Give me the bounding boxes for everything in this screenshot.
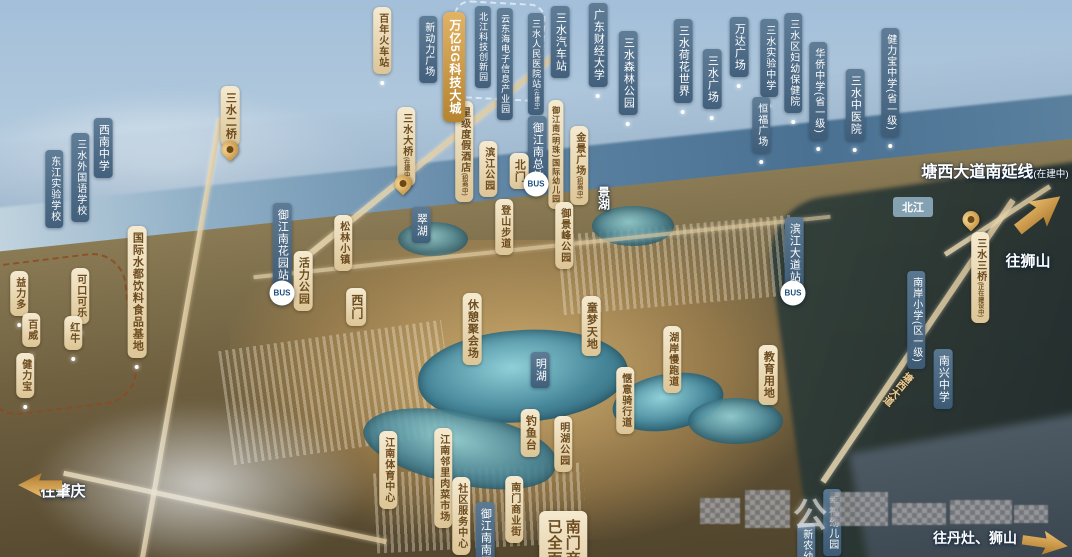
poi-label: 东江实验学校	[45, 150, 63, 228]
poi-label: 松林小镇	[334, 215, 352, 271]
direction-text-label: 景湖	[597, 186, 611, 210]
poi-label: 三水森林公园	[619, 31, 638, 115]
poi-label: 健力宝中学(省一级)	[881, 28, 899, 137]
watermark-mosaic-block	[1014, 505, 1048, 523]
poi-label-text: 三水实验中学	[764, 25, 775, 91]
direction-text: 景湖	[596, 186, 613, 210]
poi-label: 金景广场(招商中)	[570, 126, 588, 205]
poi-label-text: 三水大桥	[401, 113, 412, 157]
watermark-mosaic-block	[745, 490, 790, 528]
poi-label: 登山步道	[495, 199, 513, 255]
poi-label: 御景峰公园	[555, 202, 573, 269]
poi-label-text: 童梦天地	[585, 302, 597, 350]
poi-label-text: 广东财经大学	[592, 9, 604, 81]
poi-label: 红牛	[64, 316, 82, 350]
poi-label-text: 可口可乐	[75, 274, 86, 318]
watermark-mosaic-block	[950, 500, 1012, 524]
poi-label: 滨江公园	[479, 141, 497, 197]
poi-label-text: 三水外国语学校	[75, 139, 86, 216]
poi-label: 童梦天地	[582, 296, 601, 356]
poi-label: 广东财经大学	[589, 3, 608, 87]
bus-station-icon: BUS	[524, 172, 549, 197]
poi-label-text: 三水汽车站	[554, 12, 566, 72]
poi-label-text: 江南体育中心	[383, 437, 394, 503]
poi-label: 南兴中学	[934, 349, 953, 409]
poi-label-text: 御景峰公园	[559, 208, 570, 263]
poi-label: 三水广场	[703, 49, 722, 109]
poi-label-text: 西南中学	[97, 124, 109, 172]
poi-label-text: 万达广场	[733, 23, 745, 71]
poi-label: 南门商业街已全面开放	[539, 511, 587, 557]
direction-text-label: 往狮山	[1005, 253, 1050, 270]
bus-station-icon: BUS	[270, 281, 295, 306]
poi-label: 云东海电子信息产业园	[497, 8, 513, 120]
poi-label: 三水二桥	[221, 86, 240, 146]
poi-label-text: 健力宝中学(省一级)	[885, 34, 896, 131]
poi-label-text: 钓鱼台	[524, 415, 536, 451]
watermark-mosaic-block	[700, 498, 740, 524]
poi-label: 钓鱼台	[521, 409, 540, 457]
bus-station-icon-text: BUS	[274, 289, 291, 298]
poi-label-text: 西门	[350, 294, 364, 320]
poi-label-text: 御江南花园站	[276, 209, 288, 281]
poi-label: 江南体育中心	[379, 431, 397, 509]
poi-label-text: 翠湖	[415, 213, 427, 237]
poi-label-text: 健力宝	[20, 359, 31, 392]
poi-label: 明湖	[531, 352, 550, 388]
poi-label-text: 万亿5G科技大城	[448, 19, 462, 115]
poi-label: 江南邻里肉菜市场	[434, 428, 452, 528]
direction-text-label: 塘西大道南延线	[921, 164, 1033, 181]
poi-label: 教育用地	[759, 345, 778, 405]
poi-label-text: 登山步道	[499, 205, 510, 249]
direction-text: 往狮山	[1005, 250, 1050, 271]
fog-patch	[30, 400, 370, 557]
poi-label: 百威	[22, 313, 40, 347]
poi-label-text: 活力公园	[297, 257, 309, 305]
poi-label-text: 恒福广场	[756, 103, 767, 147]
poi-label-text: 三水人民医院站	[531, 19, 541, 89]
poi-label-text: 御江南(明珠)国际幼儿园	[552, 106, 561, 203]
poi-label: 三水实验中学	[760, 19, 778, 97]
featured-poi-label: 万亿5G科技大城	[443, 12, 465, 122]
poi-label-text: 新动力广场	[423, 22, 434, 77]
poi-label-text: 三水荷花世界	[677, 25, 689, 97]
poi-label-text: 三水区妇幼保健院	[788, 19, 799, 107]
watermark-glyph: 公	[793, 488, 827, 537]
poi-label-text: 三水二桥	[224, 92, 236, 140]
poi-label-text: 教育用地	[762, 351, 774, 399]
poi-label: 三水荷花世界	[674, 19, 693, 103]
bus-station-icon-text: BUS	[528, 180, 545, 189]
watermark-mosaic-block	[830, 492, 888, 526]
masterplan-map: 公 西南中学三水外国语学校东江实验学校新动力广场北江科技创新园云东海电子信息产业…	[0, 0, 1072, 557]
poi-label: 明湖公园	[554, 416, 572, 472]
poi-label: 御江南(明珠)国际幼儿园	[548, 100, 563, 209]
poi-label-text: 湖岸慢跑道	[667, 332, 678, 387]
poi-label: 翠湖	[412, 207, 431, 243]
direction-text: 往丹灶、狮山	[933, 528, 1017, 548]
poi-label: 百年火车站	[373, 7, 391, 74]
poi-label: 御江南南门	[476, 502, 495, 557]
poi-label: 御江南花园站	[273, 203, 292, 287]
poi-label: 活力公园	[294, 251, 313, 311]
poi-label-text: 三水森林公园	[622, 37, 634, 109]
poi-label: 南门商业街	[505, 476, 523, 543]
poi-label-text: 益力多	[14, 277, 25, 310]
poi-label: 华侨中学(省一级)	[809, 42, 827, 140]
poi-label: 南岸小学(区一级)	[907, 271, 925, 369]
bus-station-icon-text: BUS	[785, 289, 802, 298]
poi-label: 万达广场	[730, 17, 749, 77]
direction-text: 塘西大道南延线(在建中)	[921, 158, 1068, 182]
poi-label-text: 御江南南门	[479, 508, 491, 557]
cuihu-lake	[398, 222, 468, 256]
river-name-tag: 北江	[893, 197, 933, 217]
poi-label-text: 三水广场	[706, 55, 718, 103]
poi-label-text: 红牛	[68, 322, 79, 344]
poi-label-subtext: (正在建设中)	[977, 282, 984, 317]
poi-label: 三水区妇幼保健院	[784, 13, 802, 113]
poi-label-subtext: (招商中)	[461, 173, 468, 196]
poi-label: 西门	[346, 288, 366, 326]
poi-label-text: 南门商业街	[509, 482, 520, 537]
poi-label: 益力多	[10, 271, 28, 316]
poi-label: 滨江大道站	[785, 217, 804, 289]
poi-label-text: 云东海电子信息产业园	[500, 14, 510, 114]
poi-label-text: 明湖公园	[558, 422, 569, 466]
poi-label-text: 三水三桥	[975, 238, 986, 282]
poi-label-text: 南门商业街	[564, 519, 581, 557]
poi-label: 恒福广场	[752, 97, 770, 153]
poi-label-text: 南兴中学	[937, 355, 949, 403]
poi-label-text: 休憩聚会场	[466, 299, 478, 359]
poi-label: 三水中医院	[846, 69, 865, 141]
poi-label-text: 华侨中学(省一级)	[813, 48, 824, 134]
direction-text-subtext: (在建中)	[1033, 169, 1068, 180]
poi-label: 健力宝	[16, 353, 34, 398]
poi-label-text: 滨江大道站	[788, 223, 800, 283]
poi-label-text: 惬意骑行道	[620, 373, 631, 428]
poi-label: 新动力广场	[419, 16, 437, 83]
direction-text-label: 往丹灶、狮山	[933, 530, 1017, 546]
poi-label: 社区服务中心	[452, 477, 470, 555]
poi-label-subtext: (在建中)	[533, 89, 539, 109]
poi-label-subtext: (招商中)	[576, 176, 583, 199]
poi-label: 国际水都饮料食品基地	[128, 226, 147, 358]
poi-label-text: 百年火车站	[377, 13, 388, 68]
poi-label-text: 明湖	[534, 358, 546, 382]
poi-label: 北江科技创新园	[475, 6, 491, 88]
bus-station-icon: BUS	[781, 281, 806, 306]
poi-label: 三水外国语学校	[71, 133, 89, 222]
poi-label-text: 松林小镇	[338, 221, 349, 265]
poi-label: 休憩聚会场	[463, 293, 482, 365]
poi-label-text: 南岸小学(区一级)	[911, 277, 922, 363]
poi-label-text: 国际水都饮料食品基地	[131, 232, 143, 352]
poi-label: 湖岸慢跑道	[663, 326, 681, 393]
poi-label-text: 东江实验学校	[49, 156, 60, 222]
poi-label-text: 百威	[26, 319, 37, 341]
direction-text-label: 北江	[902, 202, 924, 214]
poi-label: 惬意骑行道	[616, 367, 634, 434]
watermark-mosaic-block	[892, 503, 946, 525]
poi-label-text: 滨江公园	[483, 147, 494, 191]
poi-label: 三水汽车站	[551, 6, 570, 78]
poi-label: 西南中学	[94, 118, 113, 178]
poi-label-text: 三水中医院	[849, 75, 861, 135]
poi-label: 三水人民医院站(在建中)	[528, 13, 544, 115]
poi-label-text: 已全面开放	[545, 519, 562, 557]
poi-label-text: 北江科技创新园	[478, 12, 488, 82]
poi-label: 三水三桥(正在建设中)	[971, 232, 989, 323]
poi-label-text: 江南邻里肉菜市场	[438, 434, 449, 522]
poi-label-text: 社区服务中心	[456, 483, 467, 549]
poi-label-text: 金景广场	[574, 132, 585, 176]
